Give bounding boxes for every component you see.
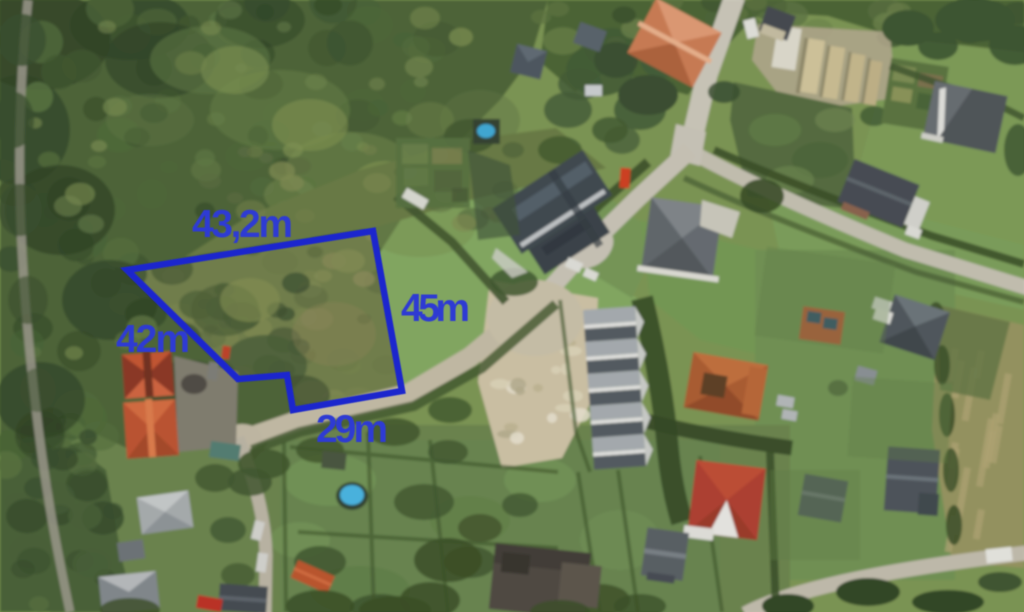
- svg-text:29m: 29m: [316, 408, 388, 451]
- svg-text:42m: 42m: [116, 318, 190, 361]
- svg-text:45m: 45m: [401, 287, 470, 330]
- svg-text:43,2m: 43,2m: [192, 203, 293, 246]
